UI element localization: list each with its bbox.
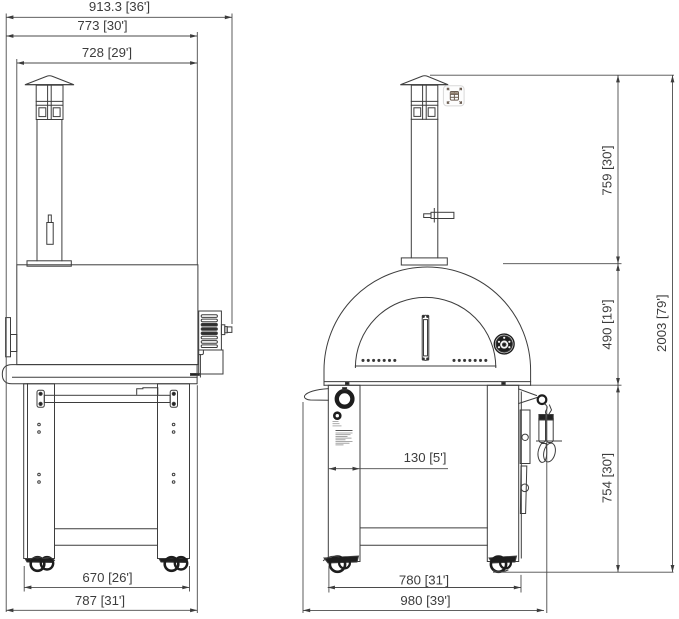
svg-text:2003 [79']: 2003 [79'] xyxy=(654,294,669,352)
svg-text:670 [26']: 670 [26'] xyxy=(82,570,132,585)
svg-text:754 [30']: 754 [30'] xyxy=(600,453,615,503)
svg-text:773 [30']: 773 [30'] xyxy=(77,18,127,33)
svg-text:728 [29']: 728 [29'] xyxy=(82,45,132,60)
svg-text:787 [31']: 787 [31'] xyxy=(75,593,125,608)
svg-text:490 [19']: 490 [19'] xyxy=(600,299,615,349)
svg-text:780 [31']: 780 [31'] xyxy=(399,573,449,588)
svg-text:913.3 [36']: 913.3 [36'] xyxy=(89,0,150,14)
svg-text:759 [30']: 759 [30'] xyxy=(600,145,615,195)
svg-text:130 [5']: 130 [5'] xyxy=(404,450,447,465)
svg-text:980 [39']: 980 [39'] xyxy=(400,593,450,608)
